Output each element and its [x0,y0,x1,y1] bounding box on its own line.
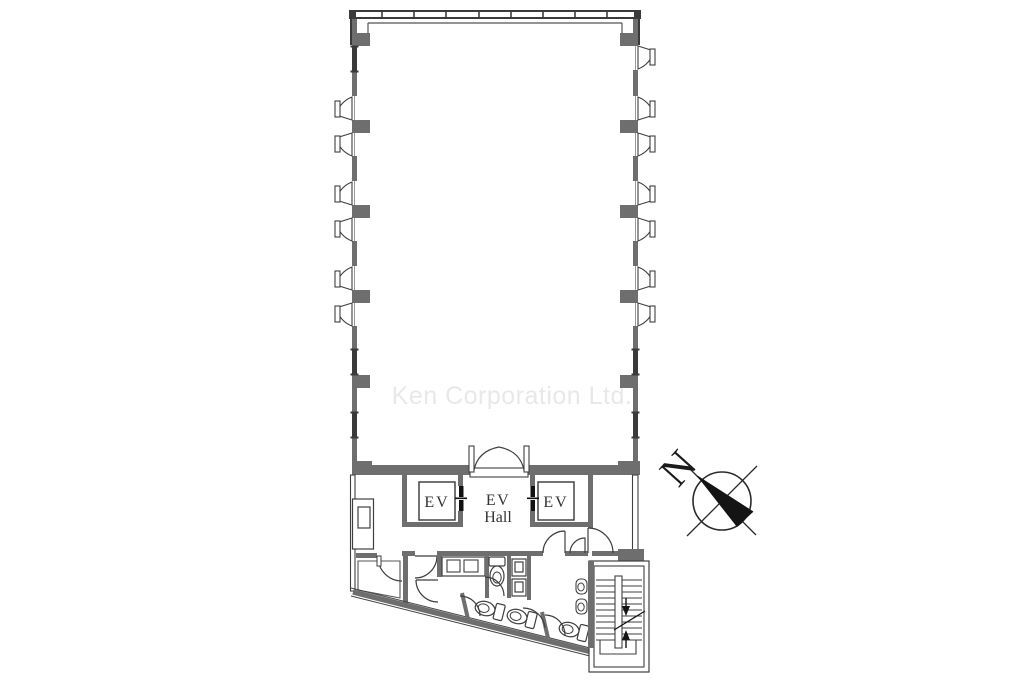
elevator-left: EV [402,475,467,527]
top-exterior-wall [350,10,640,45]
right-lower-exterior-wall [633,475,639,551]
urinal-icon [576,599,587,614]
left-exterior-wall [351,19,358,466]
diagonal-exterior-wall [351,588,592,657]
svg-text:EV: EV [486,492,510,509]
mens-room [527,556,587,614]
elevator-right-label: EV [543,494,568,511]
fixed-panel-icons [351,46,640,439]
toilet-icon [473,598,505,621]
compass-icon: N [651,442,757,536]
elevator-door-right [527,486,539,511]
corridor-door-swings [415,556,438,602]
svg-text:Hall: Hall [484,509,512,526]
wc-stall-north [485,551,511,598]
casement-window-icons [335,46,655,326]
restroom-area [351,551,592,657]
pipe-shaft [353,499,374,549]
toilet-icon [557,619,589,642]
watermark: Ken Corporation Ltd. [392,382,633,410]
floor-plan-svg: Ken Corporation Ltd. [0,0,1024,683]
elevator-door-left [455,486,467,511]
ev-hall-label: EV Hall [484,492,512,526]
sink-icon [464,560,478,572]
stair-stringer [615,576,622,648]
north-label: N [651,442,705,495]
elevator-right: EV [527,475,593,528]
elevator-left-label: EV [424,494,449,511]
utility-fixtures [512,559,526,596]
floor-plan-page: Ken Corporation Ltd. [0,0,1024,683]
stairwell [588,561,649,672]
right-exterior-wall [632,19,639,466]
urinal-icon [576,579,587,594]
double-entry-door [469,446,529,477]
sink-icon [447,560,460,572]
vanity-sinks [437,556,485,577]
hall-door-swings [543,528,613,553]
